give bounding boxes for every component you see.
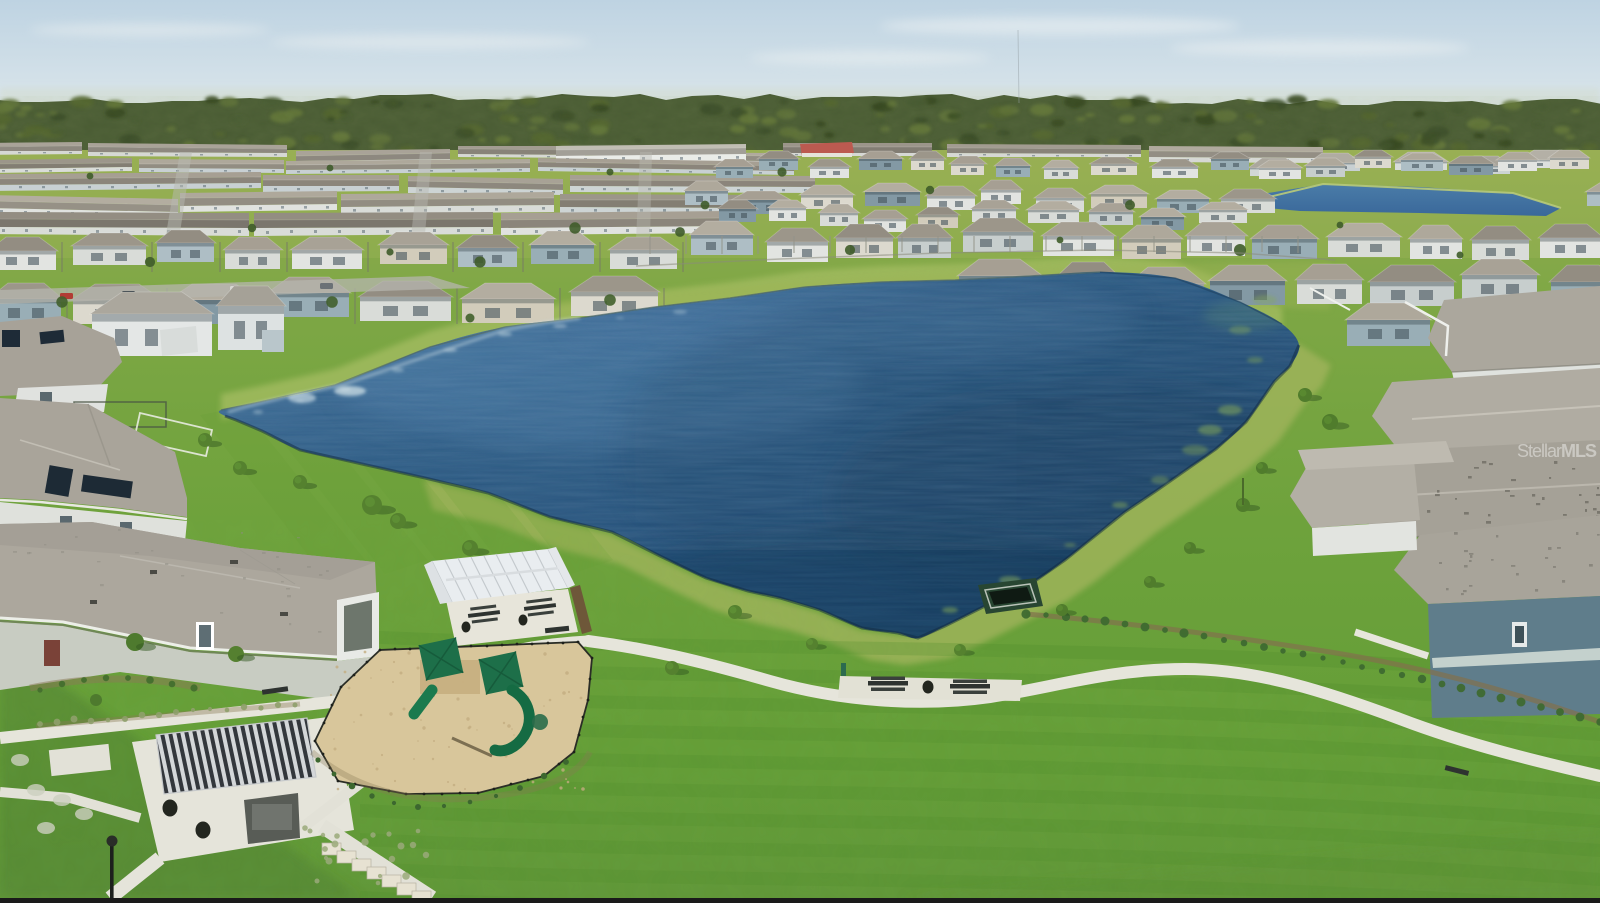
svg-text:StellarMLS: StellarMLS — [1517, 441, 1597, 461]
